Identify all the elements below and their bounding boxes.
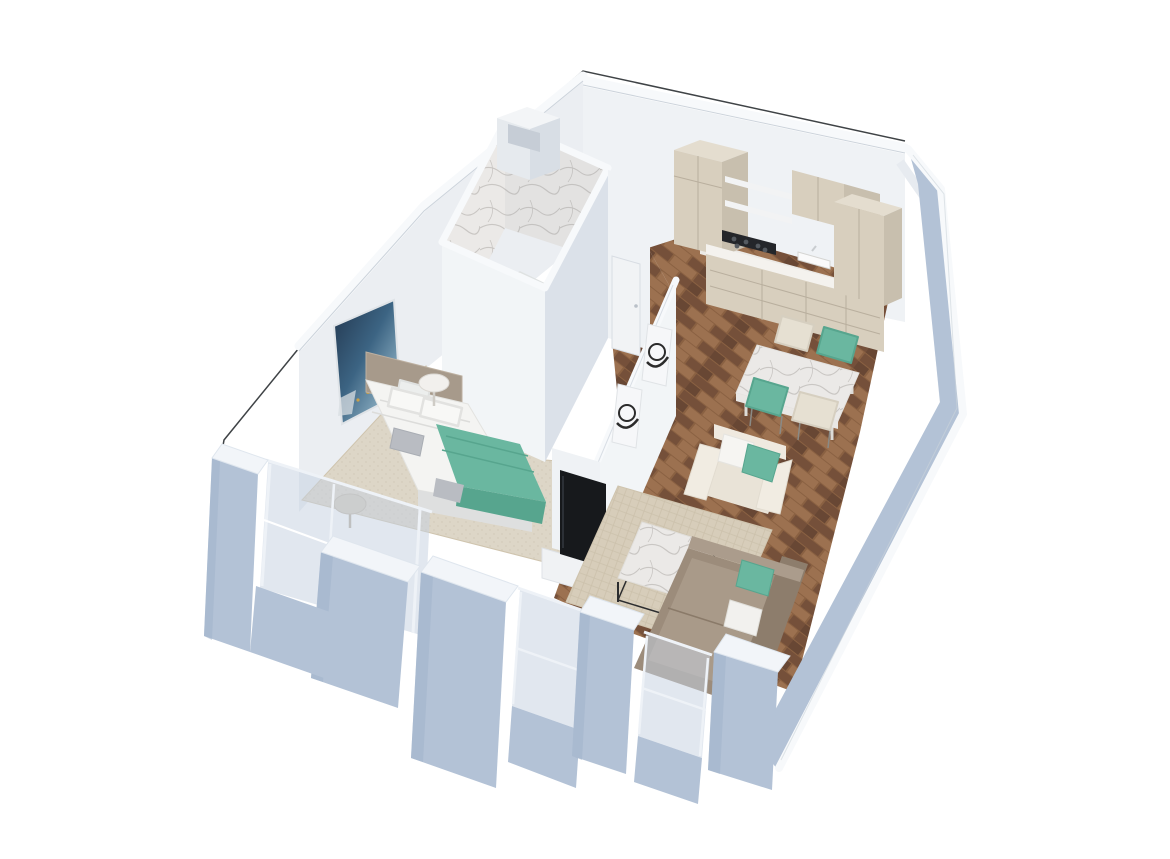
tall-unit-right <box>834 194 902 306</box>
floor-plan-canvas <box>0 0 1170 859</box>
floor-plan-3d-render <box>0 0 1170 859</box>
service-shaft-box <box>497 107 560 180</box>
bay-window-2 <box>634 632 712 804</box>
door-handle <box>634 304 638 308</box>
facade-pillar-bay-left <box>411 556 518 788</box>
facade-pillar-bay-right <box>572 596 644 774</box>
